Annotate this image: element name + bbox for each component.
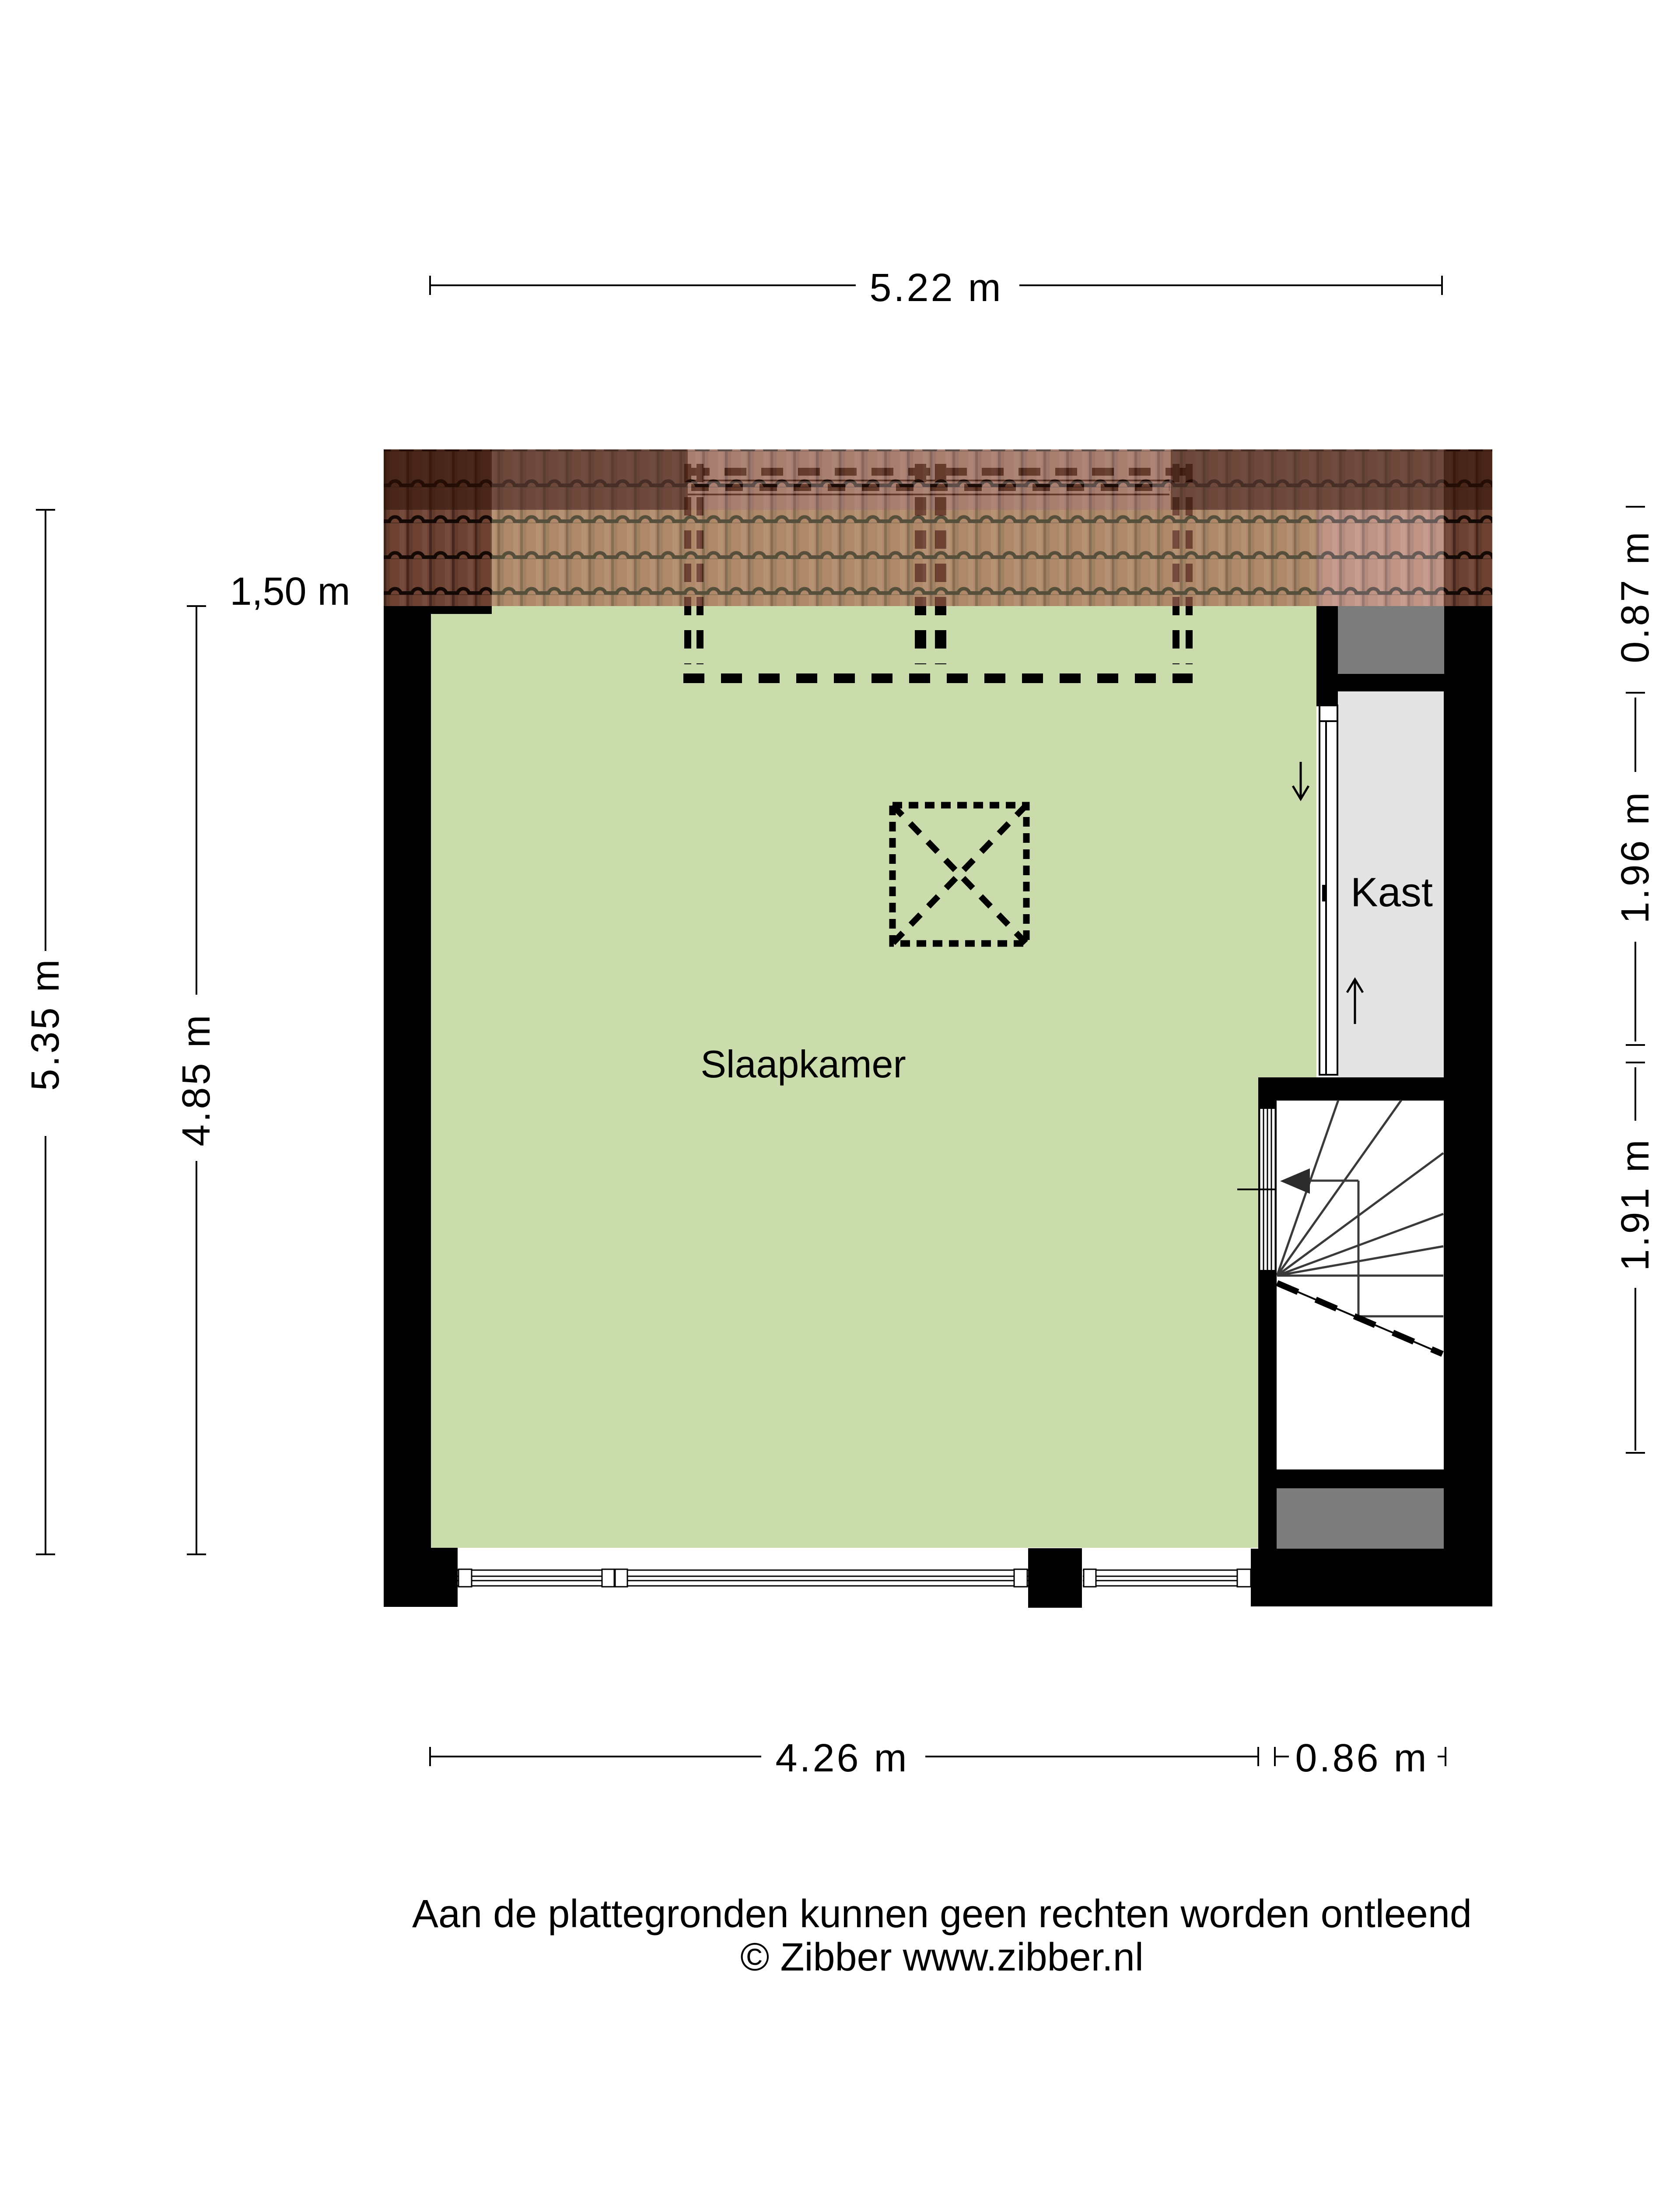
svg-text:0.86 m: 0.86 m	[1295, 1736, 1428, 1780]
svg-text:Aan de plattegronden kunnen ge: Aan de plattegronden kunnen geen rechten…	[412, 1892, 1472, 1936]
svg-text:1,50 m: 1,50 m	[230, 570, 350, 614]
svg-text:0.87 m: 0.87 m	[1613, 529, 1657, 663]
svg-text:Slaapkamer: Slaapkamer	[700, 1042, 906, 1086]
svg-text:4.85 m: 4.85 m	[175, 1013, 218, 1146]
svg-text:5.22 m: 5.22 m	[869, 266, 1003, 310]
svg-text:1.96 m: 1.96 m	[1613, 790, 1657, 923]
svg-text:4.26 m: 4.26 m	[775, 1736, 909, 1780]
svg-text:Kast: Kast	[1351, 869, 1433, 915]
svg-text:© Zibber www.zibber.nl: © Zibber www.zibber.nl	[740, 1936, 1144, 1979]
svg-text:1.91 m: 1.91 m	[1613, 1137, 1657, 1271]
svg-text:5.35 m: 5.35 m	[24, 957, 67, 1090]
